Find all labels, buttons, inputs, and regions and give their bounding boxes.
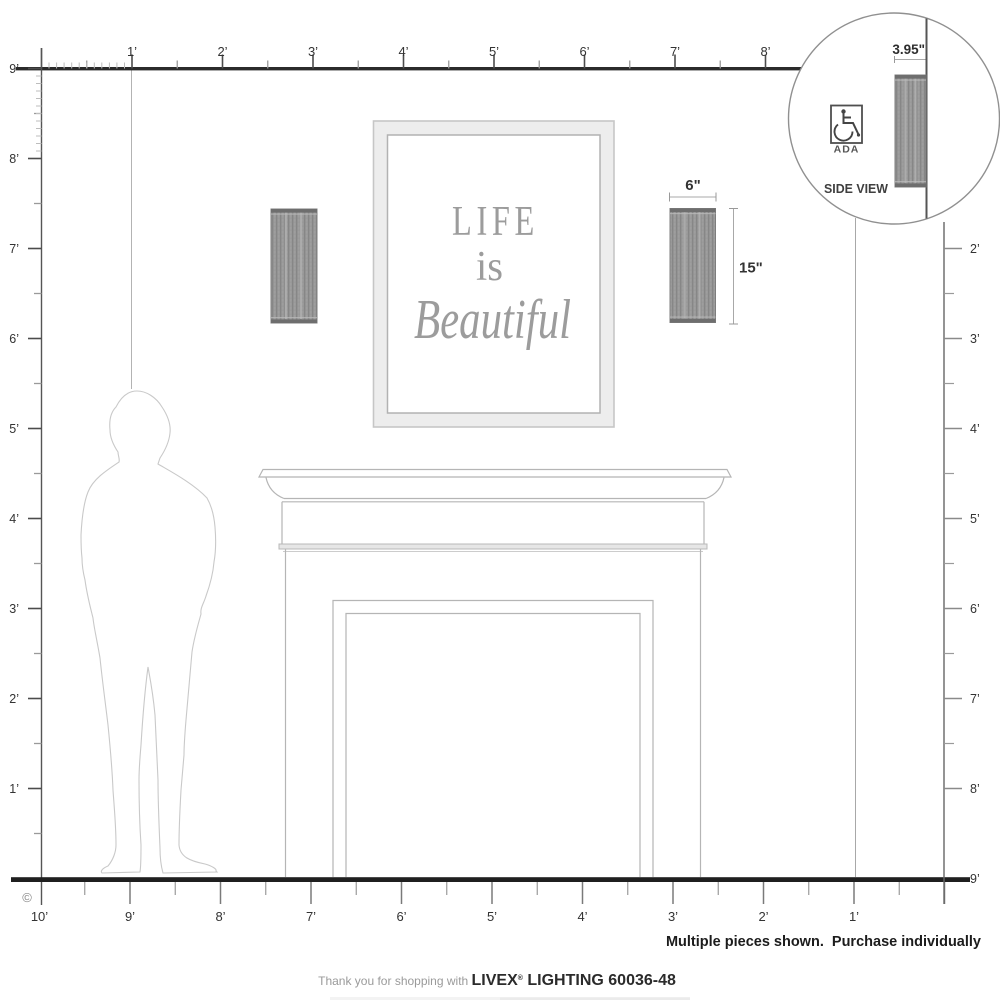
svg-text:8’: 8’ (215, 909, 225, 924)
svg-text:6’: 6’ (579, 44, 589, 59)
svg-text:6’: 6’ (9, 332, 19, 346)
svg-text:Multiple pieces shown. Purcha: Multiple pieces shown. Purchase individu… (666, 934, 981, 950)
svg-text:2’: 2’ (217, 44, 227, 59)
svg-text:5’: 5’ (9, 422, 19, 436)
svg-text:4’: 4’ (970, 422, 980, 436)
svg-text:5’: 5’ (970, 512, 980, 526)
svg-text:3’: 3’ (9, 602, 19, 616)
svg-text:3’: 3’ (308, 44, 318, 59)
svg-text:2’: 2’ (758, 909, 768, 924)
svg-text:ADA: ADA (834, 144, 860, 156)
svg-text:8’: 8’ (9, 152, 19, 166)
svg-text:4’: 4’ (577, 909, 587, 924)
svg-text:1’: 1’ (127, 44, 137, 59)
svg-text:9’: 9’ (125, 909, 135, 924)
svg-text:SIDE VIEW: SIDE VIEW (824, 182, 888, 196)
svg-text:8’: 8’ (970, 782, 980, 796)
svg-text:3’: 3’ (970, 332, 980, 346)
svg-text:8’: 8’ (760, 44, 770, 59)
svg-text:4’: 4’ (9, 512, 19, 526)
svg-text:5’: 5’ (487, 909, 497, 924)
svg-text:©: © (22, 890, 32, 905)
svg-text:LIFE: LIFE (452, 199, 539, 245)
svg-text:6’: 6’ (396, 909, 406, 924)
svg-text:7’: 7’ (306, 909, 316, 924)
svg-text:Beautiful: Beautiful (414, 289, 571, 351)
svg-text:3.95": 3.95" (892, 42, 925, 57)
svg-text:Thank you for shopping with LI: Thank you for shopping with LIVEX® LIGHT… (318, 972, 676, 989)
svg-text:2’: 2’ (9, 692, 19, 706)
svg-text:5’: 5’ (489, 44, 499, 59)
svg-text:7’: 7’ (670, 44, 680, 59)
svg-text:10’: 10’ (31, 909, 48, 924)
svg-text:7’: 7’ (970, 692, 980, 706)
svg-text:3’: 3’ (668, 909, 678, 924)
svg-text:2’: 2’ (970, 242, 980, 256)
svg-text:9’: 9’ (970, 872, 980, 886)
svg-text:6’: 6’ (970, 602, 980, 616)
svg-text:1’: 1’ (9, 782, 19, 796)
svg-text:4’: 4’ (398, 44, 408, 59)
svg-text:7’: 7’ (9, 242, 19, 256)
svg-text:is: is (476, 244, 503, 290)
svg-text:15": 15" (739, 260, 763, 277)
svg-text:9’: 9’ (9, 62, 19, 76)
svg-text:1’: 1’ (849, 909, 859, 924)
svg-text:6": 6" (685, 177, 700, 194)
